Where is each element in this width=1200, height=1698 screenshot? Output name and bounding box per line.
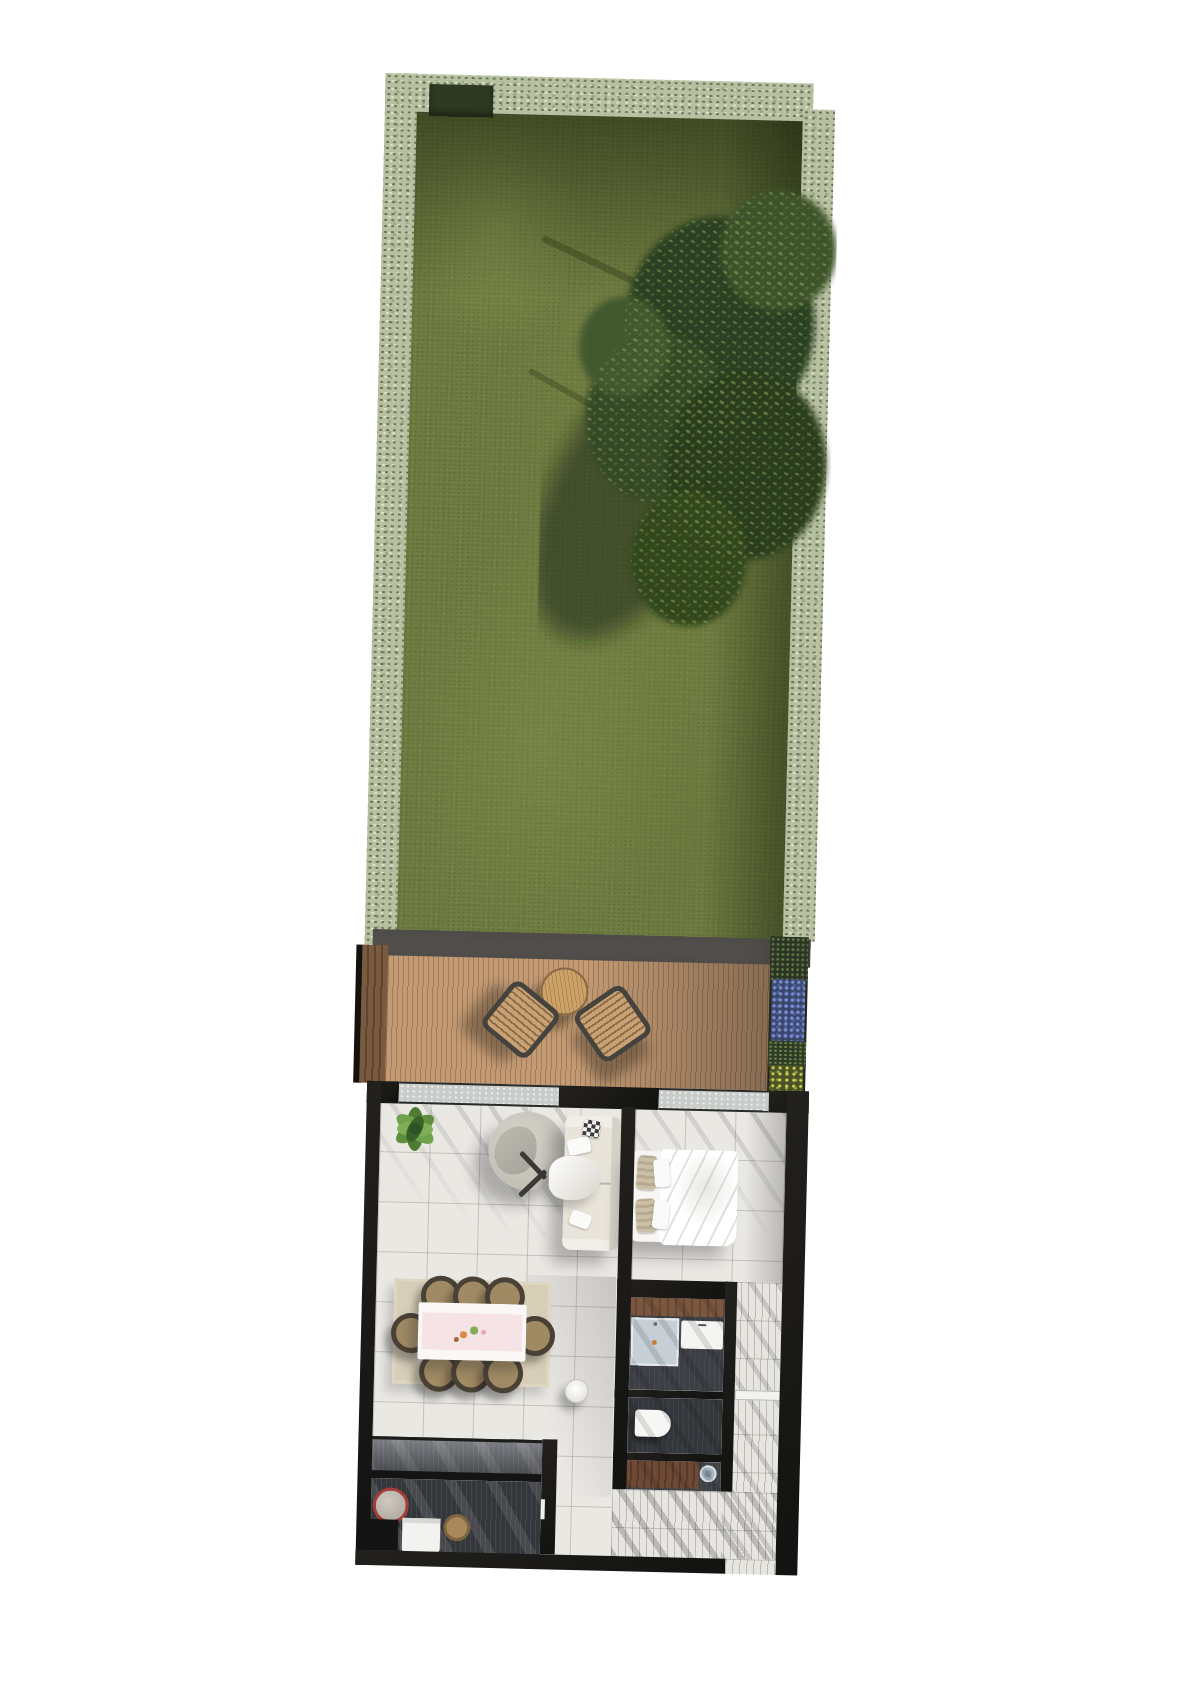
hedge-gap (429, 84, 494, 118)
floor-plan (329, 70, 835, 1575)
garden-fence (359, 945, 388, 1084)
garden-tree (536, 125, 839, 672)
planter-blue-flowers (770, 979, 806, 1044)
bed-white-pillow-top (653, 1158, 671, 1187)
duvet (658, 1149, 738, 1247)
entrance-opening (725, 1559, 775, 1575)
bed-white-pillow-bottom (651, 1200, 670, 1230)
top-wall-b (559, 1085, 660, 1109)
dining-table (417, 1302, 526, 1362)
bedroom-window (659, 1088, 770, 1113)
table-decor-pink (481, 1330, 486, 1335)
bedroom-wall-shade (742, 1112, 786, 1283)
kitchen-stub-wall (540, 1439, 558, 1554)
kitchen-area (356, 1431, 559, 1556)
bathroom-block (612, 1279, 737, 1492)
flower-planter (767, 937, 809, 1094)
planter-green-band (768, 1041, 807, 1068)
bed (632, 1150, 736, 1243)
oven (402, 1518, 441, 1553)
planter-yellow-flowers (769, 1065, 804, 1094)
stub-wall-handle (541, 1499, 545, 1519)
passage-shade (611, 1489, 778, 1561)
garden-area (344, 70, 836, 967)
bath-shade (626, 1297, 725, 1491)
deck-area (341, 926, 815, 1093)
sliding-door (399, 1082, 559, 1108)
potted-plant (391, 1095, 439, 1162)
render-canvas (0, 0, 1200, 1698)
hall-door (734, 1390, 781, 1401)
sofa-arm-bottom (562, 1239, 609, 1251)
planter-foliage-top (770, 937, 809, 982)
